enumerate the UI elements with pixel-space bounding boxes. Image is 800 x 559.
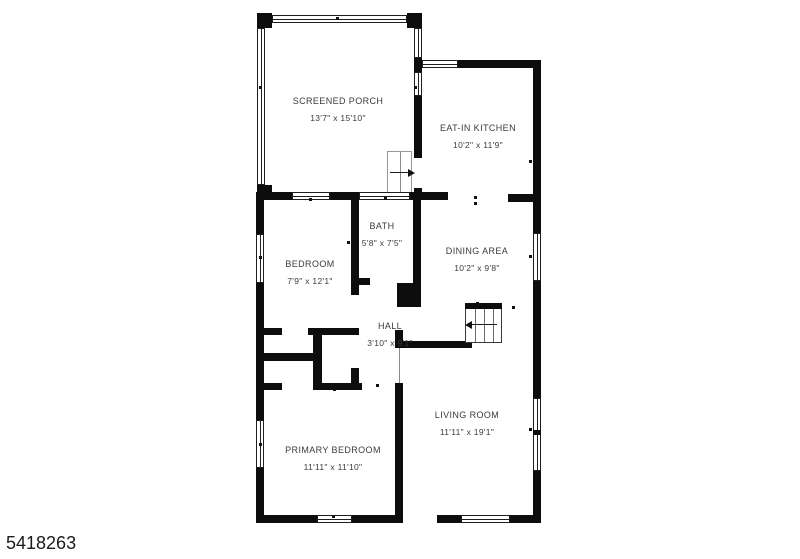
room-label-hall: HALL 3'10" x 9'1" bbox=[367, 321, 413, 348]
wall bbox=[437, 515, 461, 523]
room-name: BEDROOM bbox=[285, 259, 334, 269]
room-label-eat-in-kitchen: EAT-IN KITCHEN 10'2" x 11'9" bbox=[440, 123, 516, 150]
dimension-tick bbox=[529, 428, 532, 431]
room-label-primary-bedroom: PRIMARY BEDROOM 11'11" x 11'10" bbox=[285, 445, 381, 472]
room-dimensions: 7'9" x 12'1" bbox=[285, 276, 334, 286]
dimension-tick bbox=[474, 196, 477, 199]
chimney bbox=[397, 283, 421, 307]
window bbox=[257, 28, 265, 185]
dimension-tick bbox=[474, 202, 477, 205]
dimension-tick bbox=[333, 388, 336, 391]
listing-id-watermark: 5418263 bbox=[6, 533, 76, 554]
room-label-bath: BATH 5'8" x 7'5" bbox=[362, 221, 402, 248]
wall bbox=[414, 58, 422, 72]
wall bbox=[257, 13, 272, 28]
room-dimensions: 13'7" x 15'10" bbox=[293, 113, 384, 123]
window bbox=[533, 233, 541, 281]
stair-tread-line bbox=[475, 309, 476, 342]
dimension-tick bbox=[516, 515, 519, 518]
room-dimensions: 11'11" x 19'1" bbox=[435, 427, 499, 437]
wall bbox=[533, 60, 541, 233]
dimension-tick bbox=[529, 255, 532, 258]
room-dimensions: 5'8" x 7'5" bbox=[362, 238, 402, 248]
window bbox=[461, 515, 510, 523]
room-dimensions: 11'11" x 11'10" bbox=[285, 462, 381, 472]
wall bbox=[256, 515, 317, 523]
dimension-tick bbox=[384, 197, 387, 200]
stair-tread-line bbox=[484, 309, 485, 342]
dimension-tick bbox=[414, 86, 417, 89]
wall bbox=[313, 335, 322, 390]
wall bbox=[308, 328, 359, 335]
room-label-dining-area: DINING AREA 10'2" x 9'8" bbox=[446, 246, 508, 273]
dimension-tick bbox=[529, 160, 532, 163]
stairs-direction-arrow-head bbox=[465, 321, 472, 329]
window bbox=[272, 15, 407, 23]
entry-steps-arrow-head bbox=[408, 169, 415, 177]
wall bbox=[256, 283, 264, 420]
entry-steps-arrow bbox=[390, 172, 410, 173]
room-name: HALL bbox=[367, 321, 413, 331]
window bbox=[414, 28, 422, 58]
dimension-tick bbox=[259, 256, 262, 259]
room-dimensions: 10'2" x 9'8" bbox=[446, 263, 508, 273]
room-label-living-room: LIVING ROOM 11'11" x 19'1" bbox=[435, 410, 499, 437]
dimension-tick bbox=[259, 443, 262, 446]
dimension-tick bbox=[309, 198, 312, 201]
room-dimensions: 10'2" x 11'9" bbox=[440, 140, 516, 150]
wall bbox=[256, 192, 264, 234]
room-name: EAT-IN KITCHEN bbox=[440, 123, 516, 133]
wall bbox=[264, 353, 313, 361]
dimension-tick bbox=[259, 86, 262, 89]
dimension-tick bbox=[477, 63, 480, 66]
wall bbox=[351, 368, 359, 383]
window bbox=[414, 72, 422, 96]
room-label-bedroom: BEDROOM 7'9" x 12'1" bbox=[285, 259, 334, 286]
stair-tread-line bbox=[493, 309, 494, 342]
wall bbox=[313, 383, 362, 390]
wall bbox=[407, 13, 422, 28]
wall bbox=[256, 328, 282, 335]
room-name: SCREENED PORCH bbox=[293, 96, 384, 106]
step-line bbox=[400, 152, 401, 197]
wall bbox=[351, 278, 370, 285]
dimension-tick bbox=[396, 451, 399, 454]
wall bbox=[414, 96, 422, 158]
room-name: LIVING ROOM bbox=[435, 410, 499, 420]
dimension-tick bbox=[512, 306, 515, 309]
dimension-tick bbox=[332, 515, 335, 518]
room-dimensions: 3'10" x 9'1" bbox=[367, 338, 413, 348]
dimension-tick bbox=[416, 246, 419, 249]
wall bbox=[413, 199, 421, 283]
floor-plan: SCREENED PORCH 13'7" x 15'10" EAT-IN KIT… bbox=[0, 0, 800, 559]
room-name: DINING AREA bbox=[446, 246, 508, 256]
wall bbox=[533, 281, 541, 398]
room-name: BATH bbox=[362, 221, 402, 231]
wall bbox=[264, 383, 282, 390]
wall bbox=[458, 60, 533, 68]
window bbox=[422, 60, 458, 68]
cased-opening bbox=[399, 348, 400, 383]
dimension-tick bbox=[336, 17, 339, 20]
stairs-direction-arrow bbox=[470, 324, 497, 325]
dimension-tick bbox=[347, 241, 350, 244]
wall bbox=[508, 194, 541, 202]
room-name: PRIMARY BEDROOM bbox=[285, 445, 381, 455]
wall bbox=[510, 515, 541, 523]
window-mullion bbox=[533, 430, 541, 435]
dimension-tick bbox=[376, 384, 379, 387]
room-label-screened-porch: SCREENED PORCH 13'7" x 15'10" bbox=[293, 96, 384, 123]
dimension-tick bbox=[476, 302, 479, 305]
